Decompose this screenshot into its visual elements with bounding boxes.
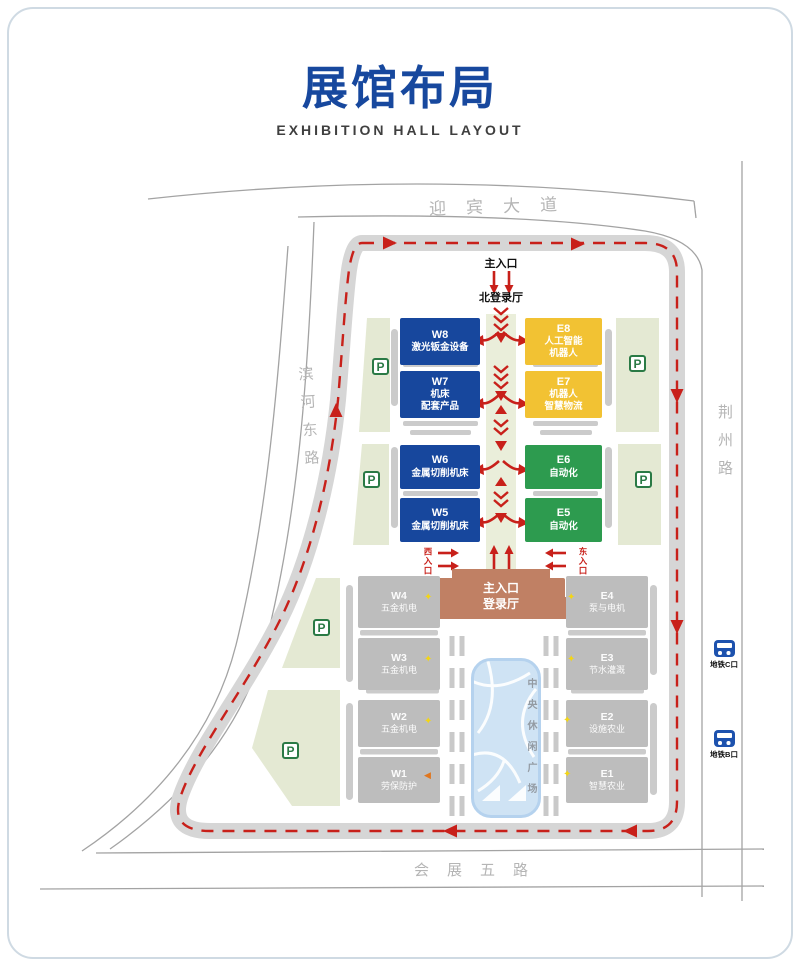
main-entrance-label: 主入口 登录厅 xyxy=(437,581,565,612)
hall-e2: E2 设施农业 xyxy=(566,700,648,747)
metro-train-icon xyxy=(714,730,735,747)
road-label-east: 荆州路 xyxy=(714,404,735,488)
hall-w5: W5 金属切削机床 xyxy=(400,498,480,542)
hall-w1: W1 劳保防护 xyxy=(358,757,440,803)
north-main-entrance-label: 主入口 xyxy=(466,255,536,271)
exhibition-map-page: 展馆布局 EXHIBITION HALL LAYOUT xyxy=(0,0,800,966)
e1-highlight-star-icon: ✦ xyxy=(563,770,571,780)
parking-icon-lower-big: P xyxy=(282,742,299,759)
parking-icon-upper-east: P xyxy=(629,355,646,372)
metro-train-icon xyxy=(714,640,735,657)
hall-e1: E1 智慧农业 xyxy=(566,757,648,803)
e4-highlight-star-icon: ✦ xyxy=(567,593,575,603)
hall-e5: E5 自动化 xyxy=(525,498,602,542)
road-label-south: 会展五路 xyxy=(360,859,600,880)
hall-e8: E8 人工智能 机器人 xyxy=(525,318,602,365)
parking-icon-mid-west: P xyxy=(363,471,380,488)
parking-icon-mid-east: P xyxy=(635,471,652,488)
metro-exit-b: 地铁B口 xyxy=(704,730,744,760)
east-entrance-label: 东入口 xyxy=(577,547,589,576)
metro-exit-c: 地铁C口 xyxy=(704,640,744,670)
central-plaza: 中央休闲广场 xyxy=(471,658,541,818)
e2-highlight-star-icon: ✦ xyxy=(563,716,571,726)
north-hall-label: 北登录厅 xyxy=(466,289,536,305)
hall-w8: W8 激光钣金设备 xyxy=(400,318,480,365)
west-entrance-label: 西入口 xyxy=(422,547,434,576)
hall-e4: E4 泵与电机 xyxy=(566,576,648,628)
metro-exit-b-label: 地铁B口 xyxy=(704,749,744,760)
metro-exit-c-label: 地铁C口 xyxy=(704,659,744,670)
hall-e7: E7 机器人 智慧物流 xyxy=(525,371,602,418)
hall-w7: W7 机床 配套产品 xyxy=(400,371,480,418)
plaza-label: 中央休闲广场 xyxy=(474,675,538,807)
hall-w6: W6 金属切削机床 xyxy=(400,445,480,489)
w2-highlight-star-icon: ✦ xyxy=(424,717,432,727)
w1-arrow-icon: ◀ xyxy=(424,771,431,780)
w4-highlight-star-icon: ✦ xyxy=(424,593,432,603)
parking-icon-upper-west: P xyxy=(372,358,389,375)
hall-e6: E6 自动化 xyxy=(525,445,602,489)
parking-icon-lower-small: P xyxy=(313,619,330,636)
hall-e3: E3 节水灌溉 xyxy=(566,638,648,690)
e3-highlight-star-icon: ✦ xyxy=(567,655,575,665)
w3-highlight-star-icon: ✦ xyxy=(424,655,432,665)
